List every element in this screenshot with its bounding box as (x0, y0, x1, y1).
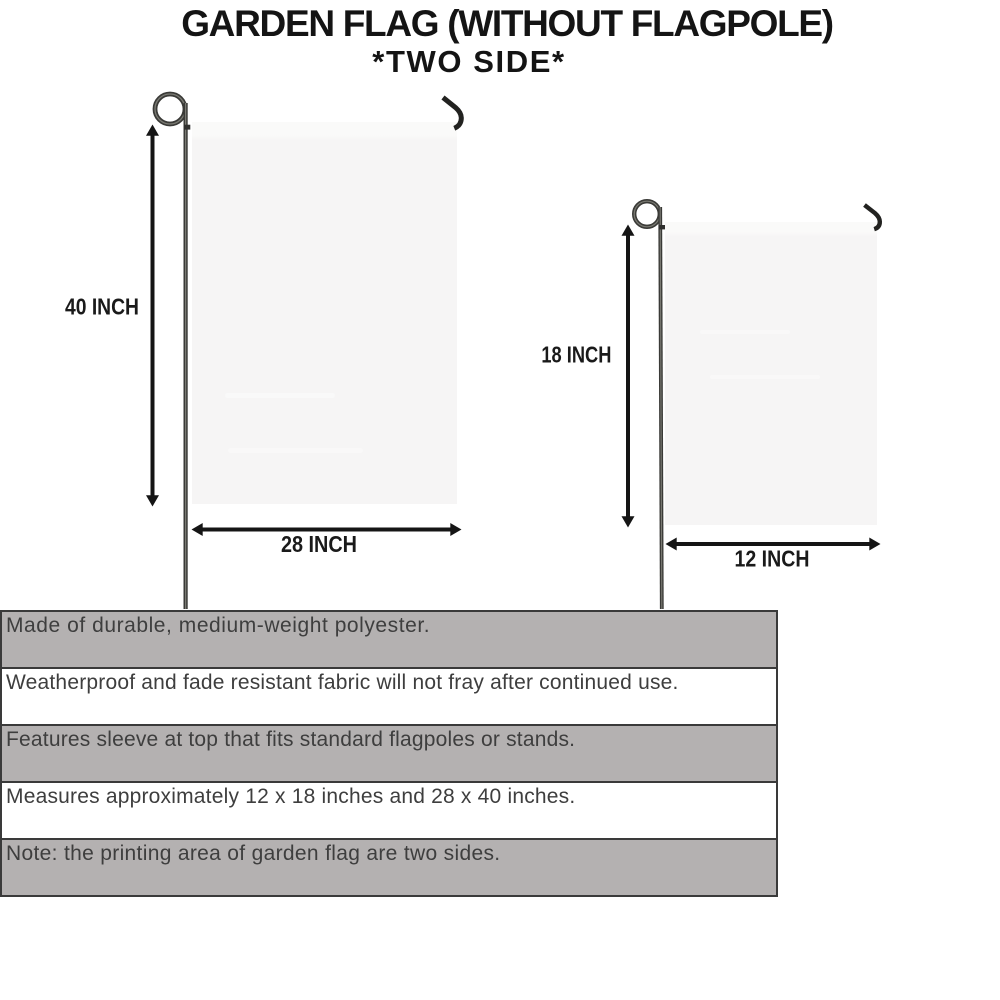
svg-text:18 INCH: 18 INCH (541, 342, 611, 368)
svg-text:28 INCH: 28 INCH (281, 531, 357, 557)
svg-text:40 INCH: 40 INCH (65, 294, 139, 320)
svg-text:12 INCH: 12 INCH (735, 546, 810, 572)
